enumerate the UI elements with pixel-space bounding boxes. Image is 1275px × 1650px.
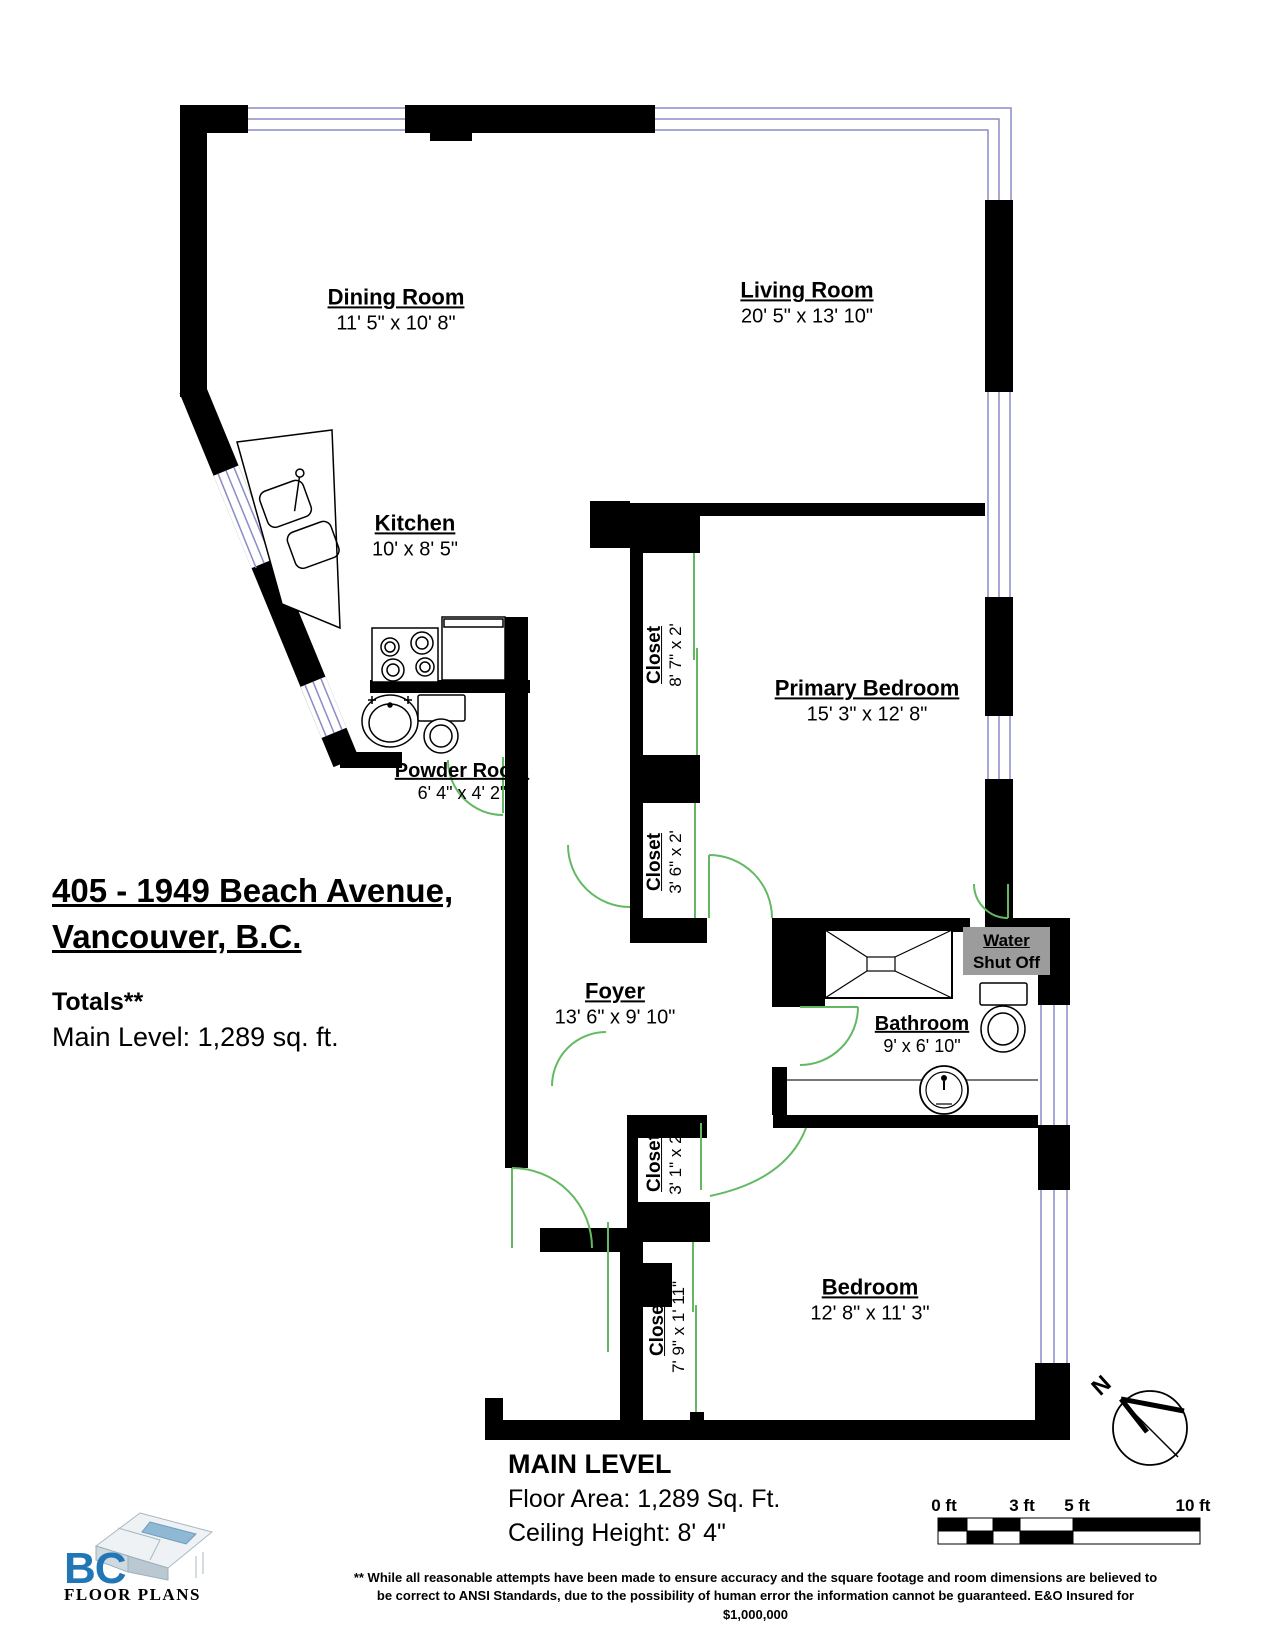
shower: [825, 930, 952, 998]
closet-label-primary: Closet8' 7" x 2': [643, 623, 687, 687]
closet-label-hall-upper: Closet3' 6" x 2': [643, 830, 687, 894]
room-label-bathroom: Bathroom9' x 6' 10": [875, 1012, 969, 1058]
address: 405 - 1949 Beach Avenue, Vancouver, B.C.: [52, 868, 453, 959]
totals-heading: Totals**: [52, 988, 143, 1017]
scale-label-0ft: 0 ft: [931, 1496, 957, 1516]
totals-main-level: Main Level: 1,289 sq. ft.: [52, 1022, 339, 1053]
level-info: MAIN LEVEL Floor Area: 1,289 Sq. Ft. Cei…: [508, 1448, 780, 1548]
level-title: MAIN LEVEL: [508, 1448, 780, 1480]
room-label-foyer: Foyer13' 6" x 9' 10": [555, 978, 676, 1029]
kitchen-appliance: [442, 617, 505, 680]
disclaimer: ** While all reasonable attempts have be…: [348, 1569, 1163, 1624]
water-shutoff-label: Water Shut Off: [963, 927, 1050, 975]
closet-label-hall-lower: Closet3' 1" x 2': [643, 1131, 687, 1195]
scale-label-3ft: 3 ft: [1009, 1496, 1035, 1516]
room-label-powder: Powder Room6' 4" x 4' 2": [395, 759, 529, 805]
powder-toilet: [418, 695, 465, 753]
room-label-dining: Dining Room11' 5" x 10' 8": [328, 284, 465, 335]
walls: [180, 105, 1070, 1440]
bathroom-toilet: [980, 983, 1027, 1052]
closet-label-bedroom: Closet7' 9" x 1' 11": [646, 1281, 690, 1373]
floor-plan-page: Dining Room11' 5" x 10' 8" Living Room20…: [0, 0, 1275, 1650]
level-ceiling-height: Ceiling Height: 8' 4": [508, 1518, 780, 1548]
stove: [372, 628, 438, 682]
scale-bar: [938, 1518, 1200, 1544]
north-arrow: [1113, 1391, 1187, 1465]
room-label-primary-bedroom: Primary Bedroom15' 3" x 12' 8": [775, 675, 960, 726]
room-label-bedroom: Bedroom12' 8" x 11' 3": [810, 1274, 929, 1325]
room-label-living: Living Room20' 5" x 13' 10": [740, 277, 873, 328]
room-label-kitchen: Kitchen10' x 8' 5": [372, 510, 458, 561]
powder-sink: [362, 695, 418, 747]
scale-label-10ft: 10 ft: [1176, 1496, 1211, 1516]
level-floor-area: Floor Area: 1,289 Sq. Ft.: [508, 1484, 780, 1514]
bathroom-vanity: [787, 1066, 1038, 1114]
floor-plan-drawing: [0, 0, 1275, 1650]
scale-label-5ft: 5 ft: [1064, 1496, 1090, 1516]
logo-floorplans-text: FLOOR PLANS: [64, 1585, 201, 1605]
